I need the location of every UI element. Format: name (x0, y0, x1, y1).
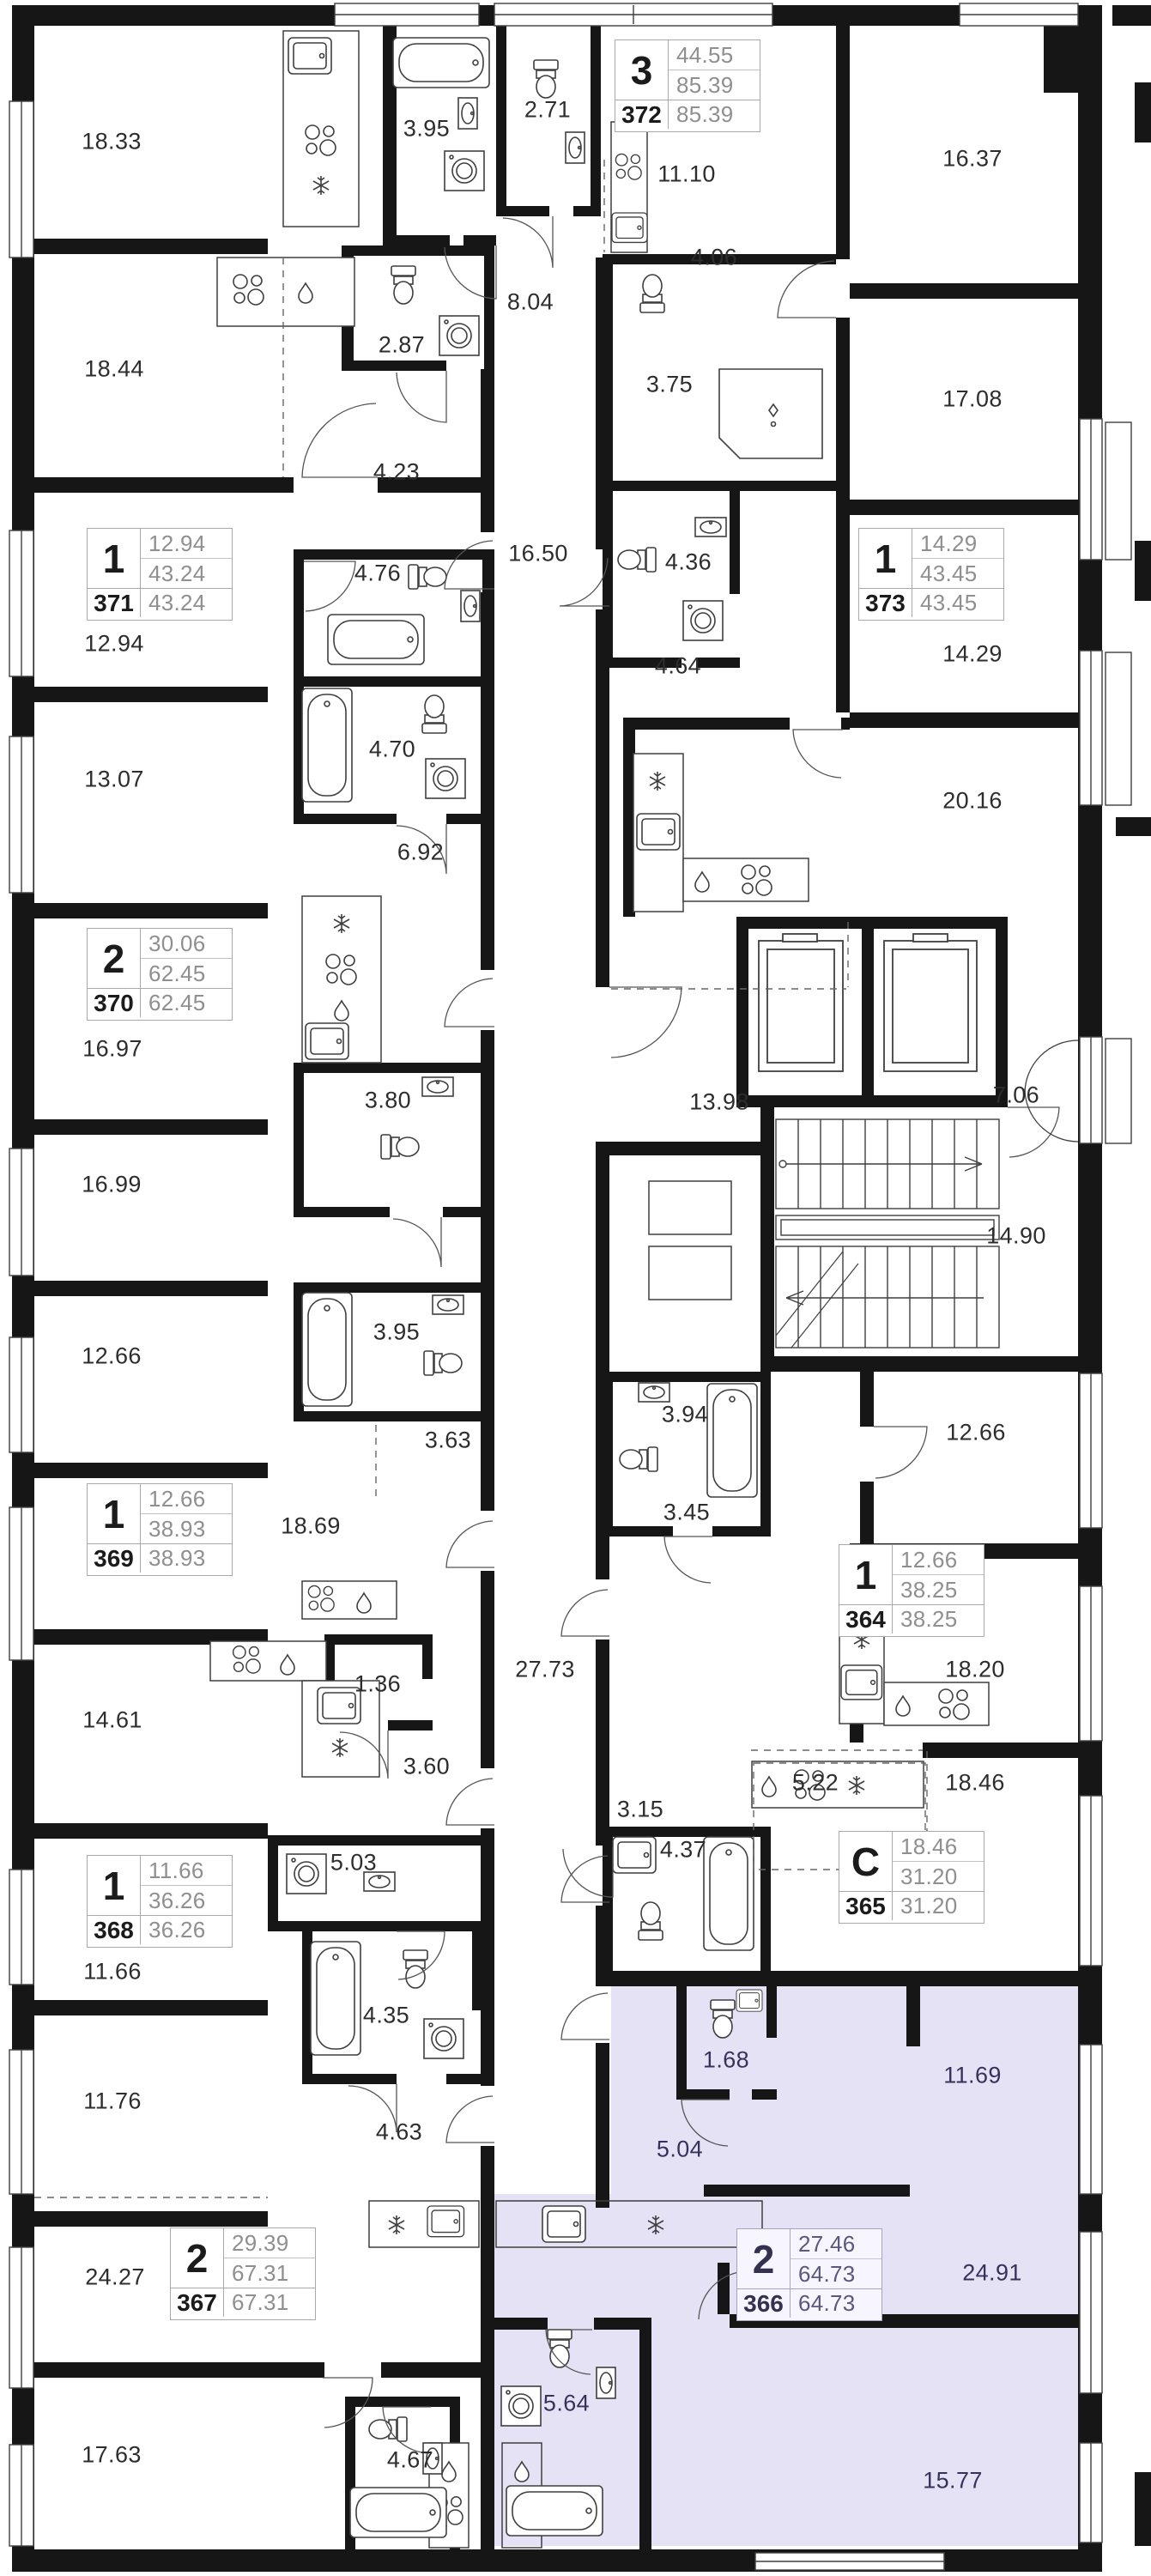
apartment-room-area: 27.46 (791, 2229, 881, 2259)
apartment-number: 365 (839, 1891, 893, 1920)
apartment-total-area: 36.26 (141, 1886, 232, 1915)
apartment-total-area: 31.20 (893, 1862, 984, 1891)
apartment-info-box[interactable]: 3 44.55 85.39 372 85.39 (615, 39, 760, 132)
apartment-type: C (839, 1832, 893, 1891)
apartment-room-area: 29.39 (224, 2228, 315, 2258)
apartment-boxes-layer: 3 44.55 85.39 372 85.39 1 12.94 43.24 37… (0, 0, 1151, 2576)
apartment-total-area: 43.45 (912, 559, 1003, 588)
apartment-total-area: 64.73 (791, 2259, 881, 2288)
apartment-total-area: 62.45 (141, 959, 232, 988)
apartment-info-box[interactable]: 1 11.66 36.26 368 36.26 (87, 1855, 233, 1948)
apartment-room-area: 11.66 (141, 1856, 232, 1886)
apartment-total-area-repeat: 67.31 (224, 2288, 315, 2317)
apartment-number: 367 (171, 2288, 224, 2317)
apartment-total-area-repeat: 43.45 (912, 588, 1003, 617)
apartment-total-area: 38.25 (893, 1575, 984, 1604)
apartment-info-box[interactable]: 1 12.66 38.93 369 38.93 (87, 1483, 233, 1576)
apartment-room-area: 12.94 (141, 529, 232, 559)
apartment-room-area: 44.55 (669, 40, 760, 70)
apartment-info-box[interactable]: 2 27.46 64.73 366 64.73 (736, 2228, 882, 2321)
apartment-type: 3 (615, 40, 669, 100)
apartment-type: 2 (88, 929, 141, 988)
apartment-total-area-repeat: 38.25 (893, 1604, 984, 1633)
apartment-info-box[interactable]: 1 14.29 43.45 373 43.45 (858, 528, 1004, 621)
apartment-total-area-repeat: 31.20 (893, 1891, 984, 1920)
apartment-type: 1 (859, 529, 912, 588)
apartment-type: 2 (737, 2229, 791, 2288)
apartment-number: 368 (88, 1915, 141, 1944)
apartment-total-area-repeat: 43.24 (141, 588, 232, 617)
apartment-total-area: 85.39 (669, 70, 760, 100)
apartment-info-box[interactable]: 2 29.39 67.31 367 67.31 (170, 2227, 316, 2320)
apartment-total-area-repeat: 85.39 (669, 100, 760, 129)
floor-plan-canvas: 18.33 3.95 2.71 11.10 16.37 4.06 8.04 18… (0, 0, 1151, 2576)
apartment-number: 370 (88, 988, 141, 1017)
apartment-type: 1 (88, 529, 141, 588)
apartment-room-area: 12.66 (893, 1545, 984, 1575)
apartment-type: 1 (88, 1856, 141, 1915)
apartment-number: 369 (88, 1543, 141, 1573)
apartment-info-box[interactable]: 1 12.94 43.24 371 43.24 (87, 528, 233, 621)
apartment-room-area: 14.29 (912, 529, 1003, 559)
apartment-info-box[interactable]: 1 12.66 38.25 364 38.25 (839, 1544, 984, 1637)
apartment-room-area: 12.66 (141, 1484, 232, 1514)
apartment-room-area: 30.06 (141, 929, 232, 959)
apartment-type: 2 (171, 2228, 224, 2288)
apartment-number: 364 (839, 1604, 893, 1633)
apartment-number: 372 (615, 100, 669, 129)
apartment-number: 366 (737, 2288, 791, 2318)
apartment-info-box[interactable]: C 18.46 31.20 365 31.20 (839, 1831, 984, 1924)
apartment-total-area-repeat: 38.93 (141, 1543, 232, 1573)
apartment-info-box[interactable]: 2 30.06 62.45 370 62.45 (87, 928, 233, 1021)
apartment-total-area-repeat: 64.73 (791, 2288, 881, 2318)
apartment-total-area: 38.93 (141, 1514, 232, 1543)
apartment-number: 371 (88, 588, 141, 617)
apartment-type: 1 (88, 1484, 141, 1543)
apartment-type: 1 (839, 1545, 893, 1604)
apartment-total-area: 43.24 (141, 559, 232, 588)
apartment-total-area: 67.31 (224, 2258, 315, 2288)
apartment-total-area-repeat: 62.45 (141, 988, 232, 1017)
apartment-number: 373 (859, 588, 912, 617)
apartment-total-area-repeat: 36.26 (141, 1915, 232, 1944)
apartment-room-area: 18.46 (893, 1832, 984, 1862)
